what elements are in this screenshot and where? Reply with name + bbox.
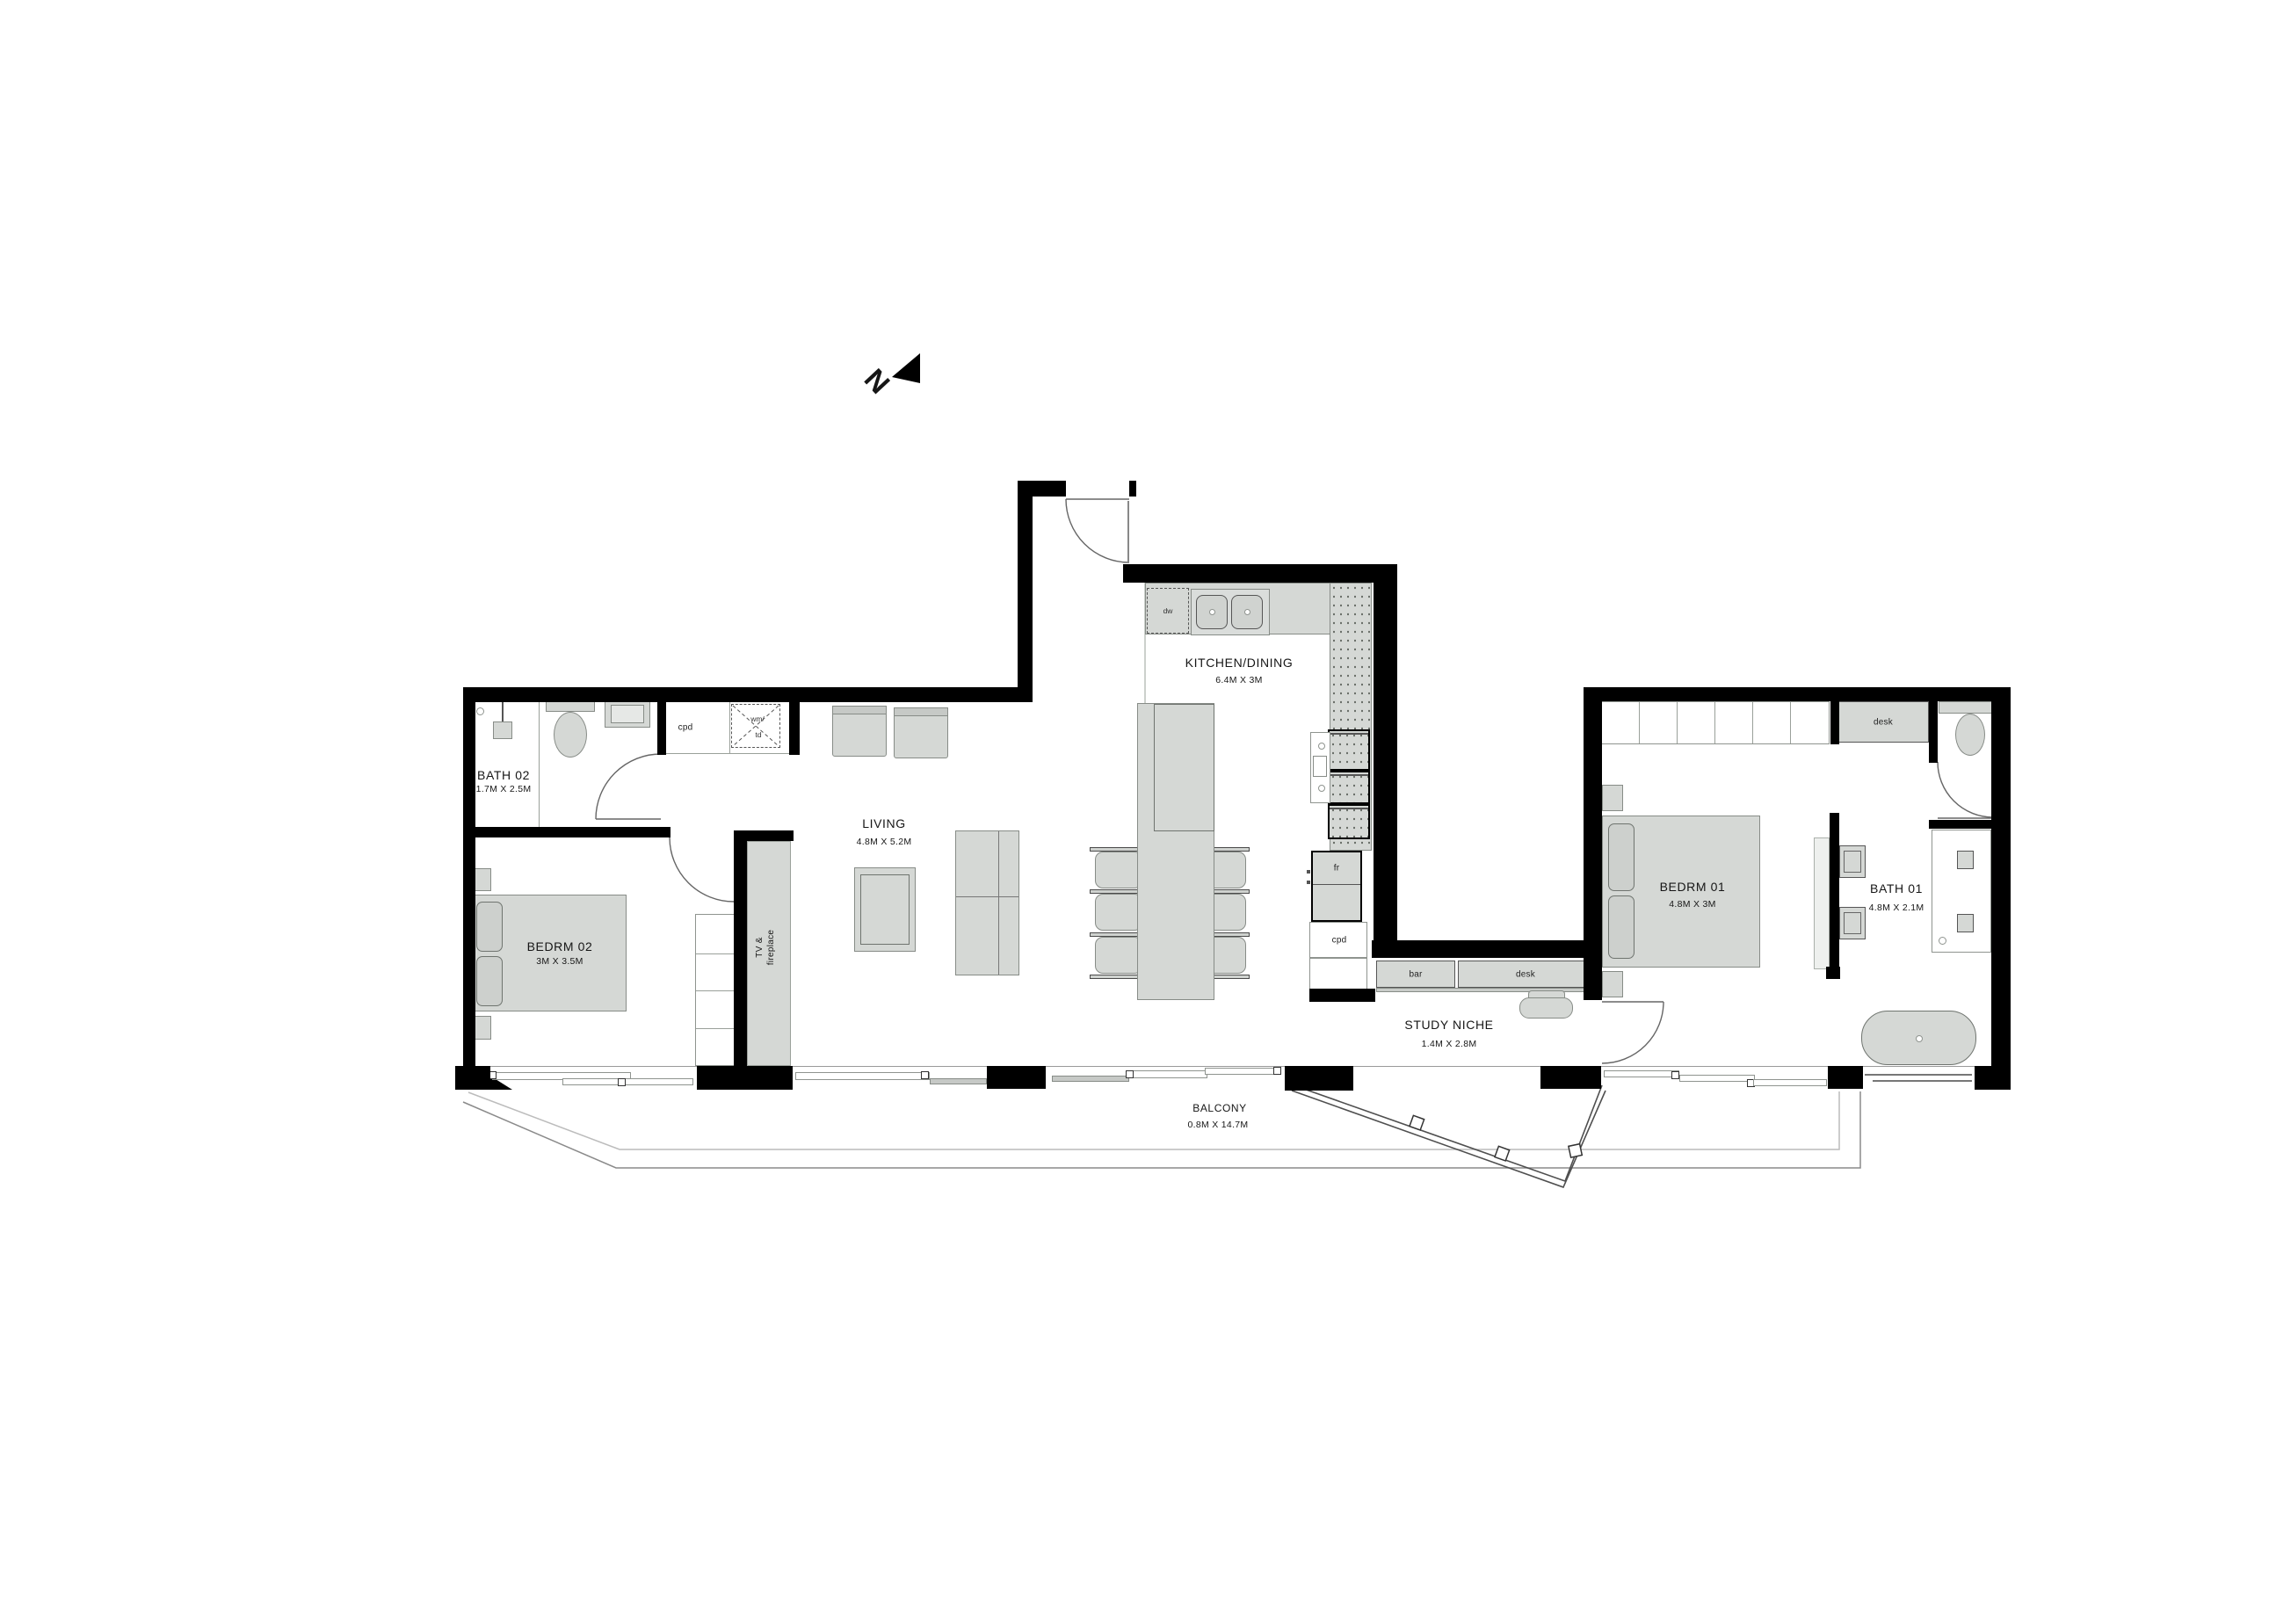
oven-handle [1330, 774, 1368, 776]
door-handle [618, 1078, 626, 1086]
fridge-label: fr [1334, 864, 1340, 874]
bedside-table [1602, 785, 1623, 811]
toilet-symbol [554, 712, 587, 758]
room-dims-living: 4.8M X 5.2M [857, 837, 912, 847]
shower-tray [1932, 830, 1991, 953]
shower-head-symbol [1957, 851, 1974, 869]
shower-screen-line [539, 699, 540, 828]
sofa-line [956, 896, 1018, 897]
wall-base-line [463, 1066, 2011, 1067]
pillow [1608, 823, 1635, 891]
room-label-living: LIVING [862, 816, 906, 830]
wall-pier [987, 1066, 1046, 1089]
room-label-balcony: BALCONY [1192, 1102, 1247, 1114]
pillow [1608, 895, 1635, 959]
sofa [955, 830, 1019, 975]
desk-label: desk [1874, 718, 1893, 728]
wall-segment [1374, 564, 1397, 940]
pillow [476, 902, 503, 952]
vanity-basin-bowl [1844, 912, 1861, 934]
sofa-line [998, 831, 999, 975]
wall-segment [657, 699, 666, 755]
cupboard-label: cpd [678, 723, 693, 733]
door-handle [921, 1071, 929, 1079]
bar-label: bar [1409, 970, 1422, 980]
sliding-door-panel [1205, 1068, 1281, 1075]
armchair-back [832, 706, 887, 714]
wall-segment [1584, 687, 2011, 701]
sliding-door-panel [1604, 1070, 1679, 1077]
room-label-bath01: BATH 01 [1870, 881, 1923, 895]
room-label-bedrm01: BEDRM 01 [1660, 880, 1726, 894]
sink-drain [1209, 609, 1215, 615]
wc-shelf [1939, 701, 1992, 714]
room-label-bedrm02: BEDRM 02 [527, 939, 593, 953]
wall-segment [463, 687, 1018, 702]
balustrade-post [1569, 1144, 1582, 1157]
wardrobe-divider [1790, 702, 1791, 743]
room-label-kitchen: KITCHEN/DINING [1185, 656, 1294, 670]
room-dims-bath01: 4.8M X 2.1M [1869, 903, 1924, 913]
knob-symbol [1318, 743, 1325, 750]
fridge-divider [1313, 884, 1360, 885]
cupboard-label: cpd [1332, 936, 1347, 946]
balcony-inner-outline [468, 1091, 1839, 1149]
sliding-door-panel [1753, 1079, 1827, 1086]
shower-head-symbol [493, 721, 512, 739]
window-sill [930, 1078, 987, 1084]
dining-chair [1095, 937, 1142, 974]
bedrm01-balcony-door-arc [1602, 1002, 1664, 1063]
wall-segment [1929, 701, 1938, 763]
balcony-outer-outline [463, 1091, 1860, 1168]
cupboard-cell [1309, 958, 1367, 990]
shelf-divider [696, 1028, 735, 1029]
wall-pier [1285, 1066, 1353, 1091]
sliding-door-panel [795, 1072, 930, 1080]
oven-handle [1330, 733, 1368, 735]
bath02-door-arc [596, 754, 661, 819]
armchair-back [894, 707, 948, 716]
fridge-box [1311, 851, 1362, 922]
balustrade-line [1292, 1091, 1606, 1187]
washing-machine-label: wm/ [750, 714, 765, 723]
window-sill [1052, 1076, 1129, 1082]
knob-symbol [1318, 785, 1325, 792]
wall-segment [789, 699, 800, 755]
wall-segment [1018, 481, 1066, 497]
door-handle [1126, 1070, 1134, 1078]
shower-head-symbol [1957, 914, 1974, 932]
wall-segment [734, 830, 794, 841]
basin-bowl [611, 705, 644, 723]
wall-segment [1018, 481, 1033, 702]
wall-segment [1584, 687, 1602, 1000]
wall-segment [1929, 820, 2008, 829]
bedrm02-door-arc [670, 837, 734, 902]
window-line [1873, 1080, 1972, 1082]
sliding-door-panel [1126, 1070, 1207, 1078]
window-line [1865, 1074, 1972, 1076]
sliding-door-panel [562, 1078, 693, 1085]
dishwasher-label: dw [1163, 606, 1173, 615]
room-dims-bedrm01: 4.8M X 3M [1669, 899, 1715, 910]
desk-chair [1519, 997, 1573, 1019]
oven-box [1328, 729, 1370, 771]
wardrobe-divider [1752, 702, 1753, 743]
tv-fireplace-label: TV & fireplace [754, 895, 786, 1000]
closet-divider [729, 699, 730, 754]
shelf-divider [696, 953, 735, 954]
room-dims-kitchen: 6.4M X 3M [1215, 675, 1262, 685]
dining-chair [1095, 894, 1142, 931]
wc-door-arc [1938, 762, 1993, 817]
wall-segment [734, 830, 747, 1066]
wall-segment [1129, 481, 1136, 497]
oven-handle [1330, 808, 1368, 809]
door-handle [1273, 1067, 1281, 1075]
room-dims-bedrm02: 3M X 3.5M [536, 956, 583, 967]
shelf-divider [696, 990, 735, 991]
wall-pier [697, 1066, 793, 1090]
balustrade-line [1296, 1085, 1602, 1181]
wall-pier [1828, 1066, 1863, 1089]
wall-pier [1975, 1066, 2011, 1090]
room-label-bath02: BATH 02 [477, 768, 530, 782]
entry-door-arc [1066, 499, 1129, 562]
wall-segment [1309, 989, 1375, 1002]
desk-label: desk [1516, 970, 1535, 980]
tv-label-line1: TV & [754, 895, 765, 1000]
wall-pier [1540, 1066, 1601, 1089]
fridge-hinge [1307, 870, 1310, 874]
wall-segment [463, 827, 670, 837]
north-arrow-icon [892, 353, 920, 383]
room-dims-balcony: 0.8M X 14.7M [1188, 1120, 1249, 1130]
island-bench-top [1154, 704, 1214, 831]
bench-strip [1814, 837, 1830, 969]
sliding-door-panel [1679, 1075, 1755, 1082]
sink-drain [1244, 609, 1250, 615]
room-dims-study: 1.4M X 2.8M [1422, 1039, 1477, 1049]
wm-td-box [731, 704, 780, 748]
tumble-dryer-label: td [755, 730, 761, 739]
balustrade-post [1410, 1115, 1424, 1130]
wall-segment [1826, 967, 1840, 979]
dining-chair [1095, 852, 1142, 888]
fridge-hinge [1307, 881, 1310, 884]
floor-plan-canvas: BATH 02 1.7M X 2.5M BEDRM 02 3M X 3.5M L… [0, 0, 2276, 1624]
bedside-table [1602, 971, 1623, 997]
wardrobe [1601, 701, 1830, 744]
balustrade-post [1495, 1146, 1510, 1161]
wall-segment [1372, 940, 1602, 958]
wardrobe-divider [1639, 702, 1640, 743]
tv-label-line2: fireplace [765, 895, 777, 1000]
wall-segment [1991, 687, 2011, 1090]
pillow [476, 956, 503, 1006]
coffee-table-inner [860, 874, 910, 945]
drain-symbol [1939, 937, 1946, 945]
vanity-basin-bowl [1844, 851, 1861, 873]
toilet-symbol [1955, 714, 1985, 756]
closet-front-line [666, 753, 790, 754]
wall-segment [1123, 564, 1397, 583]
wall-pier [455, 1066, 490, 1090]
room-label-study: STUDY NICHE [1404, 1018, 1493, 1032]
north-letter: N [858, 362, 896, 400]
wall-segment [1830, 701, 1839, 744]
control-recess [1313, 756, 1327, 777]
shower-control-symbol [476, 707, 484, 715]
room-dims-bath02: 1.7M X 2.5M [476, 784, 532, 794]
oven-box [1328, 804, 1370, 839]
wall-segment [1830, 813, 1839, 974]
wardrobe-divider [1714, 702, 1715, 743]
drain-symbol [1916, 1035, 1923, 1042]
door-handle [1671, 1071, 1679, 1079]
wall-segment [463, 687, 475, 1090]
wardrobe-divider [1677, 702, 1678, 743]
